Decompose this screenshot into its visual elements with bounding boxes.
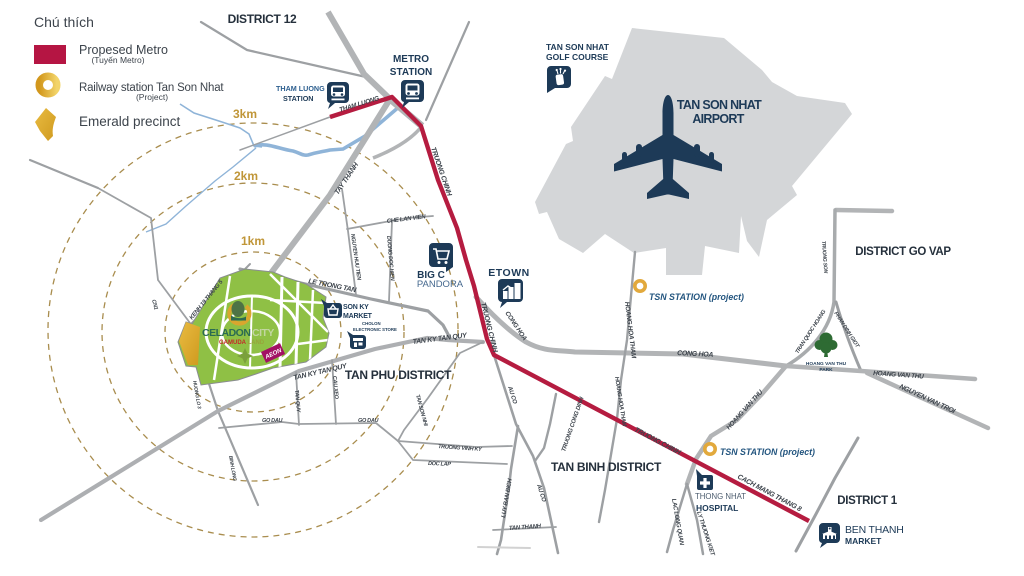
svg-text:1km: 1km [241, 234, 265, 248]
svg-text:TAN BINH DISTRICT: TAN BINH DISTRICT [551, 460, 662, 474]
svg-text:ELECTRONIC STORE: ELECTRONIC STORE [353, 327, 397, 332]
svg-text:GO DAU: GO DAU [262, 418, 284, 424]
svg-text:THAM LUONG: THAM LUONG [276, 84, 325, 93]
svg-text:AIRPORT: AIRPORT [692, 112, 744, 126]
svg-text:MARKET: MARKET [343, 313, 373, 320]
svg-text:MARKET: MARKET [845, 536, 882, 546]
svg-text:TSN STATION (project): TSN STATION (project) [649, 292, 744, 302]
svg-text:Emerald precinct: Emerald precinct [79, 114, 181, 129]
svg-text:PANDORA: PANDORA [417, 279, 464, 290]
svg-text:TAN PHU DISTRICT: TAN PHU DISTRICT [345, 368, 452, 382]
svg-text:HOANG VAN THU: HOANG VAN THU [806, 361, 847, 367]
svg-text:SON KY: SON KY [343, 304, 369, 311]
svg-text:CELADON: CELADON [202, 327, 250, 339]
svg-text:STATION: STATION [390, 67, 432, 78]
svg-text:TAN SON NHAT: TAN SON NHAT [677, 98, 762, 112]
svg-text:TSN STATION (project): TSN STATION (project) [720, 447, 815, 457]
svg-text:TAN SON NHAT: TAN SON NHAT [546, 42, 610, 52]
svg-text:HOSPITAL: HOSPITAL [696, 503, 738, 513]
svg-text:(Project): (Project) [136, 92, 168, 102]
svg-text:GOLF COURSE: GOLF COURSE [546, 52, 609, 62]
svg-text:GAMUDA LAND: GAMUDA LAND [219, 340, 265, 346]
svg-text:Chú thích: Chú thích [34, 14, 94, 30]
svg-text:GO DAU: GO DAU [358, 418, 380, 424]
svg-text:DISTRICT GO VAP: DISTRICT GO VAP [855, 246, 951, 258]
svg-text:(Tuyến Metro): (Tuyến Metro) [91, 55, 144, 65]
svg-text:PARK: PARK [819, 367, 833, 373]
svg-text:DISTRICT 12: DISTRICT 12 [228, 12, 297, 26]
svg-text:STATION: STATION [283, 94, 313, 103]
svg-text:THONG NHAT: THONG NHAT [695, 492, 746, 501]
svg-text:3km: 3km [233, 107, 257, 121]
svg-text:DISTRICT 1: DISTRICT 1 [837, 495, 898, 507]
svg-text:CITY: CITY [252, 327, 274, 339]
svg-text:BEN THANH: BEN THANH [845, 524, 904, 536]
svg-text:METRO: METRO [393, 54, 429, 65]
svg-text:CHOLON: CHOLON [362, 321, 381, 326]
svg-text:2km: 2km [234, 169, 258, 183]
svg-text:DOC LAP: DOC LAP [428, 461, 451, 468]
svg-text:ETOWN: ETOWN [488, 267, 529, 279]
